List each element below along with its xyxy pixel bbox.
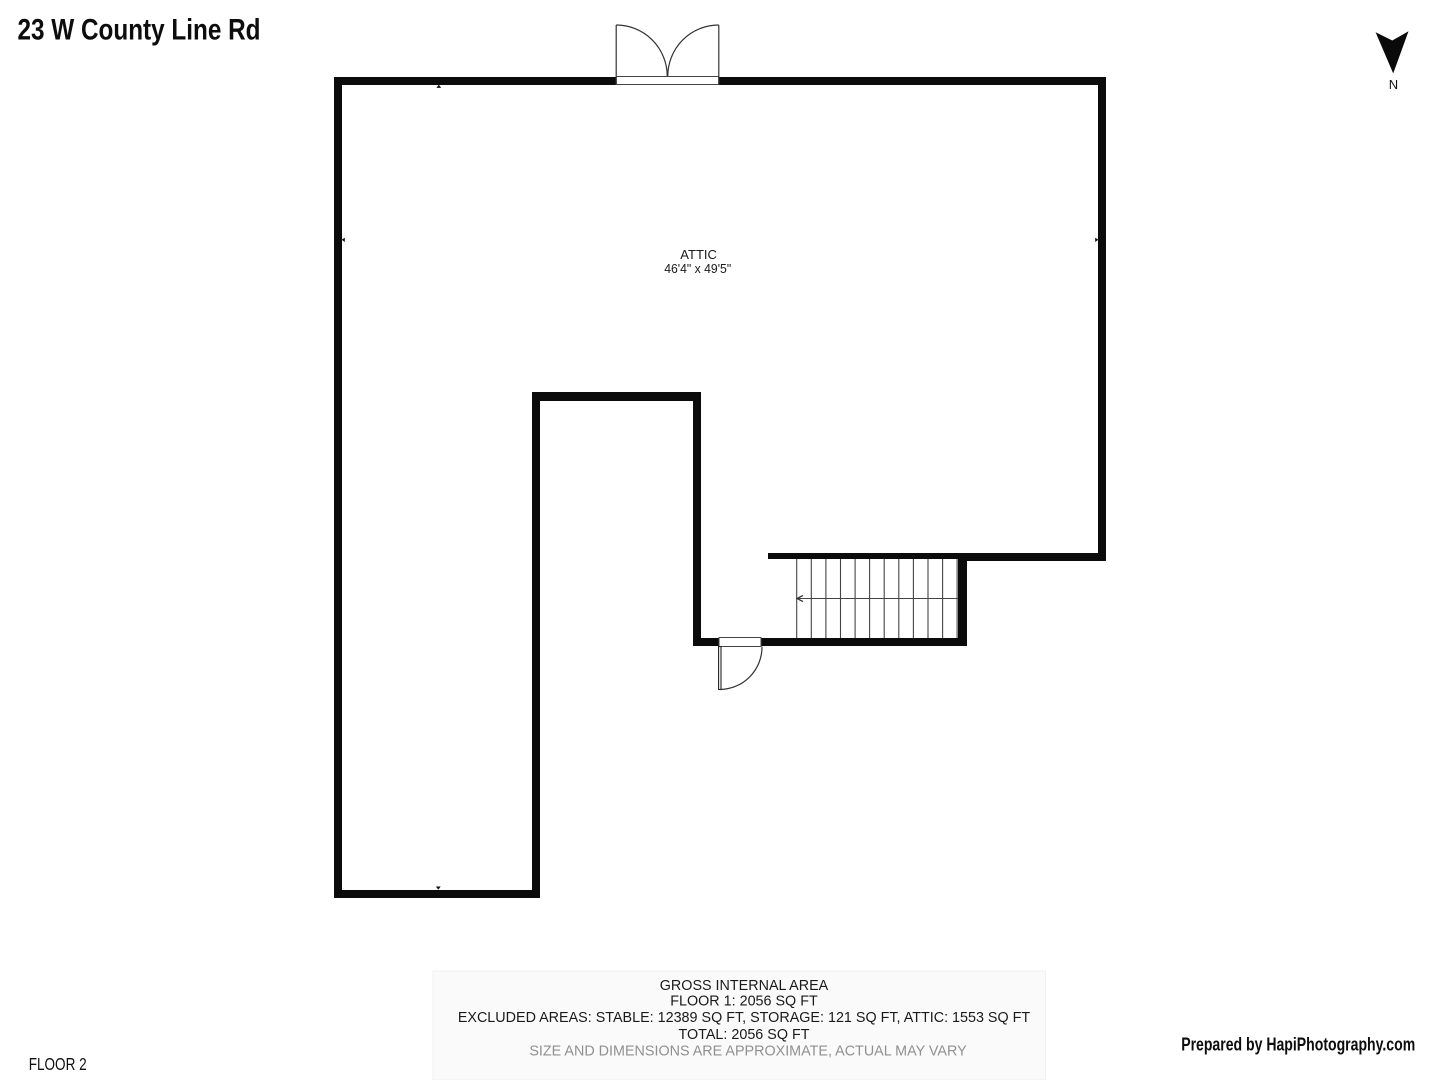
svg-text:FLOOR 1: 2056 SQ FT: FLOOR 1: 2056 SQ FT xyxy=(670,993,818,1009)
svg-text:ATTIC: ATTIC xyxy=(680,247,717,262)
svg-text:46'4" x 49'5": 46'4" x 49'5" xyxy=(664,261,731,276)
svg-text:EXCLUDED AREAS: STABLE: 12389: EXCLUDED AREAS: STABLE: 12389 SQ FT, STO… xyxy=(458,1010,1031,1026)
svg-text:TOTAL: 2056 SQ FT: TOTAL: 2056 SQ FT xyxy=(679,1027,810,1043)
svg-text:Prepared by HapiPhotography.co: Prepared by HapiPhotography.com xyxy=(1181,1035,1415,1055)
svg-text:GROSS INTERNAL AREA: GROSS INTERNAL AREA xyxy=(660,978,829,994)
svg-text:23 W County Line Rd: 23 W County Line Rd xyxy=(18,14,261,47)
svg-text:N: N xyxy=(1389,77,1398,92)
svg-text:SIZE AND DIMENSIONS ARE APPROX: SIZE AND DIMENSIONS ARE APPROXIMATE, ACT… xyxy=(529,1044,967,1060)
svg-text:FLOOR 2: FLOOR 2 xyxy=(29,1054,87,1074)
